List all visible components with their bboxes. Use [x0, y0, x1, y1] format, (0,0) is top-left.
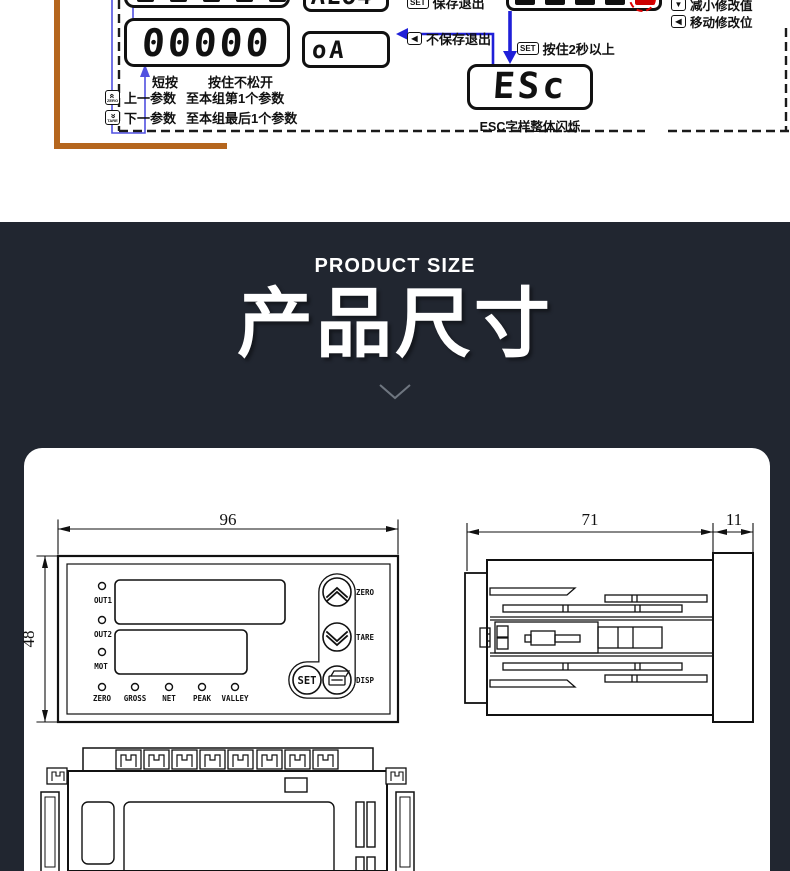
lcd-display-or: oA [302, 31, 390, 68]
no-save-exit-note: ◀ 不保存退出 [407, 29, 491, 48]
led-label-zero: ZERO [93, 694, 112, 703]
blue-down-arrow [503, 11, 517, 64]
product-size-banner: PRODUCT SIZE 产品尺寸 [0, 222, 790, 440]
front-view-drawing: 96 48 [19, 510, 398, 722]
save-exit-label: 保存退出 [433, 0, 485, 12]
banner-subtitle: PRODUCT SIZE [0, 222, 790, 278]
lcd-display-main: 00000 [124, 18, 290, 67]
esc-display-value: ESc [492, 69, 569, 105]
dimension-drawings-section: 96 48 [0, 440, 790, 871]
operation-flow-diagram: ALo4 00000 oA SET 保存退出 ◀ 不 [0, 0, 790, 222]
set-hold-note: SET 按住2秒以上 [517, 39, 615, 58]
set-key-icon: SET [407, 0, 429, 9]
led-label-out2: OUT2 [94, 630, 112, 639]
led-label-out1: OUT1 [94, 596, 113, 605]
lcd-display-cutoff-left [124, 0, 290, 8]
led-label-peak: PEAK [193, 694, 212, 703]
led-label-valley: VALLEY [221, 694, 249, 703]
next-param-target: 至本组最后1个参数 [186, 108, 297, 127]
banner-title: 产品尺寸 [0, 286, 790, 364]
led-label-gross: GROSS [124, 694, 147, 703]
next-param-label: 下一参数 [124, 108, 176, 127]
lcd-display-param-name: ALo4 [303, 0, 389, 12]
next-param-row: « TARE 下一参数 至本组最后1个参数 [105, 108, 297, 127]
led-label-mot: MOT [94, 662, 108, 671]
product-page: ALo4 00000 oA SET 保存退出 ◀ 不 [0, 0, 790, 871]
tare-key-icon: « TARE [105, 110, 120, 125]
led-label-net: NET [162, 694, 176, 703]
param-name-value: ALo4 [310, 0, 373, 8]
front-height-dim: 48 [19, 631, 38, 648]
set-key-icon: SET [517, 42, 539, 55]
side-view-drawing: 71 11 [465, 510, 753, 722]
button-label-zero: ZERO [356, 588, 375, 597]
top-down-view-drawing [41, 748, 414, 871]
no-save-exit-label: 不保存退出 [426, 29, 491, 48]
set-hold-label: 按住2秒以上 [543, 39, 615, 58]
lcd-display-esc: ESc [467, 64, 593, 110]
main-display-value: 00000 [141, 24, 273, 62]
save-exit-note: SET 保存退出 [407, 0, 485, 12]
side-depth-dim: 71 [582, 510, 599, 529]
down-arrow-key-icon: ▼ [671, 0, 686, 11]
technical-drawings: 96 48 [0, 440, 790, 871]
move-digit-note: ◀ 移动修改位 [671, 12, 753, 31]
side-bezel-dim: 11 [726, 510, 742, 529]
chevron-down-icon [377, 382, 413, 402]
prev-param-target: 至本组第1个参数 [186, 88, 284, 107]
button-label-disp: DISP [356, 676, 375, 685]
prev-param-row: « ZERO 上一参数 至本组第1个参数 [105, 88, 284, 107]
prev-param-label: 上一参数 [124, 88, 176, 107]
or-display-value: oA [311, 38, 348, 62]
left-arrow-key-icon: ◀ [407, 32, 422, 45]
button-label-tare: TARE [356, 633, 375, 642]
set-button-label: SET [298, 675, 317, 687]
esc-blink-caption: ESC字样整体闪烁 [455, 116, 605, 135]
left-arrow-key-icon: ◀ [671, 15, 686, 28]
zero-key-icon: « ZERO [105, 90, 120, 105]
front-width-dim: 96 [220, 510, 237, 529]
